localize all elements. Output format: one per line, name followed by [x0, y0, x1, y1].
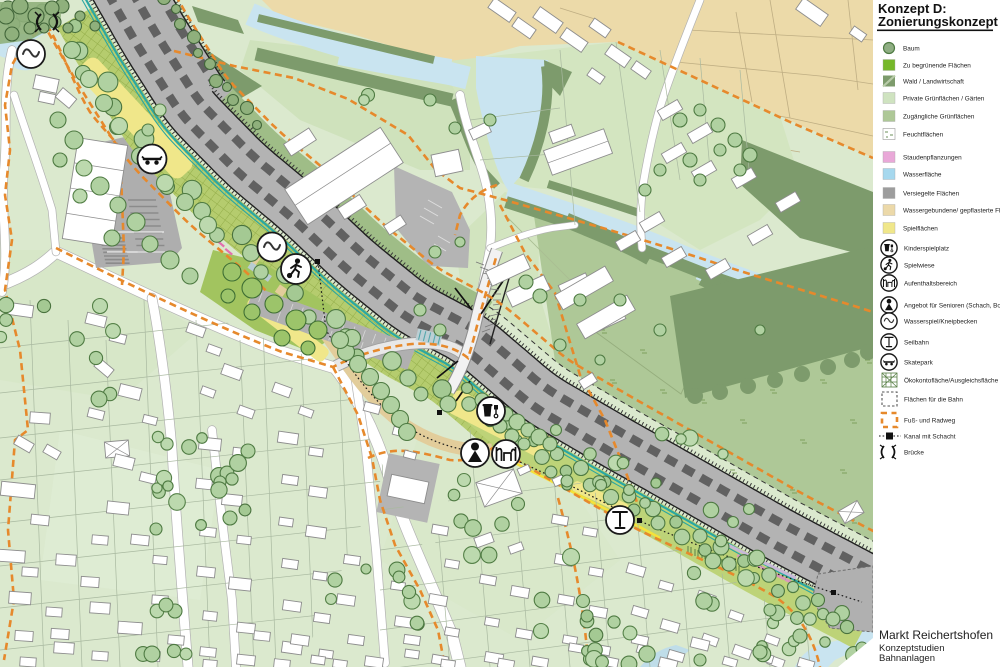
svg-text:Zonierungskonzept: Zonierungskonzept: [878, 14, 999, 29]
svg-text:Angebot für Senioren (Schach,: Angebot für Senioren (Schach, Bocci: [904, 302, 1000, 309]
svg-text:Zugängliche Grünflächen: Zugängliche Grünflächen: [903, 113, 975, 120]
svg-text:Bahnanlagen: Bahnanlagen: [879, 653, 935, 664]
svg-text:Ökokontofläche/Ausgleichsfläch: Ökokontofläche/Ausgleichsfläche: [904, 376, 999, 384]
svg-text:Baum: Baum: [903, 45, 920, 52]
svg-text:Brücke: Brücke: [904, 449, 924, 456]
svg-text:Markt Reichertshofen: Markt Reichertshofen: [879, 628, 993, 642]
svg-text:Flächen für die Bahn: Flächen für die Bahn: [904, 396, 963, 403]
svg-text:Versiegelte Flächen: Versiegelte Flächen: [903, 190, 960, 197]
svg-text:Wald / Landwirtschaft: Wald / Landwirtschaft: [903, 78, 964, 85]
svg-text:Staudenpflanzungen: Staudenpflanzungen: [903, 154, 962, 161]
svg-text:Wasserspiel/Kneipbecken: Wasserspiel/Kneipbecken: [904, 318, 978, 325]
svg-text:Aufenthaltsbereich: Aufenthaltsbereich: [904, 280, 957, 287]
svg-text:Kinderspielplatz: Kinderspielplatz: [904, 245, 949, 252]
svg-text:Spielflächen: Spielflächen: [903, 225, 938, 232]
svg-text:Skatepark: Skatepark: [904, 359, 934, 366]
svg-text:Kanal mit Schacht: Kanal mit Schacht: [904, 433, 956, 440]
svg-text:Private Grünflächen / Gärten: Private Grünflächen / Gärten: [903, 95, 985, 102]
svg-text:Feuchtflächen: Feuchtflächen: [903, 131, 944, 138]
svg-text:Wassergebundene/ gepflasterte: Wassergebundene/ gepflasterte Fläch: [903, 207, 1000, 214]
svg-text:Fuß- und Radweg: Fuß- und Radweg: [904, 417, 956, 424]
svg-text:Zu begrünende Flächen: Zu begrünende Flächen: [903, 62, 971, 69]
svg-text:Seilbahn: Seilbahn: [904, 339, 929, 346]
svg-text:Wasserfläche: Wasserfläche: [903, 171, 942, 178]
svg-text:Spielwiese: Spielwiese: [904, 262, 935, 269]
